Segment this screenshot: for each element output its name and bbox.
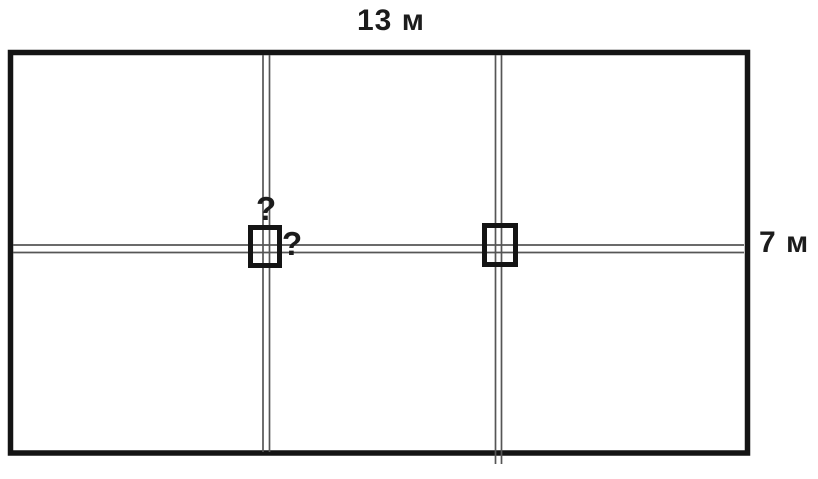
garden-plot-diagram: 13 м 7 м ? ? bbox=[0, 0, 818, 479]
left-post-square bbox=[251, 228, 280, 266]
diagram-canvas bbox=[0, 0, 818, 479]
top-dimension-label: 13 м bbox=[357, 4, 425, 38]
right-dimension-label: 7 м bbox=[759, 226, 809, 260]
unknown-height-question-mark: ? bbox=[282, 227, 302, 260]
unknown-width-question-mark: ? bbox=[256, 192, 276, 225]
